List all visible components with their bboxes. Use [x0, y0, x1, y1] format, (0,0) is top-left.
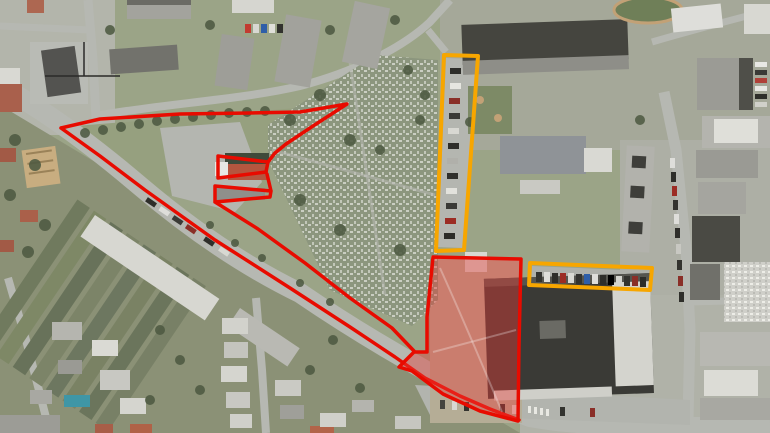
long-dark-apartment-slab	[461, 19, 629, 75]
dark-warehouse	[41, 46, 81, 97]
top-left-street	[0, 26, 90, 30]
swimming-pool	[64, 395, 90, 407]
apartment-slab-east	[621, 145, 655, 252]
satellite-image	[0, 0, 770, 433]
apartment-block	[109, 45, 179, 75]
school-building	[500, 136, 586, 174]
red-roof-warehouse	[0, 84, 22, 112]
map-canvas[interactable]	[0, 0, 770, 433]
